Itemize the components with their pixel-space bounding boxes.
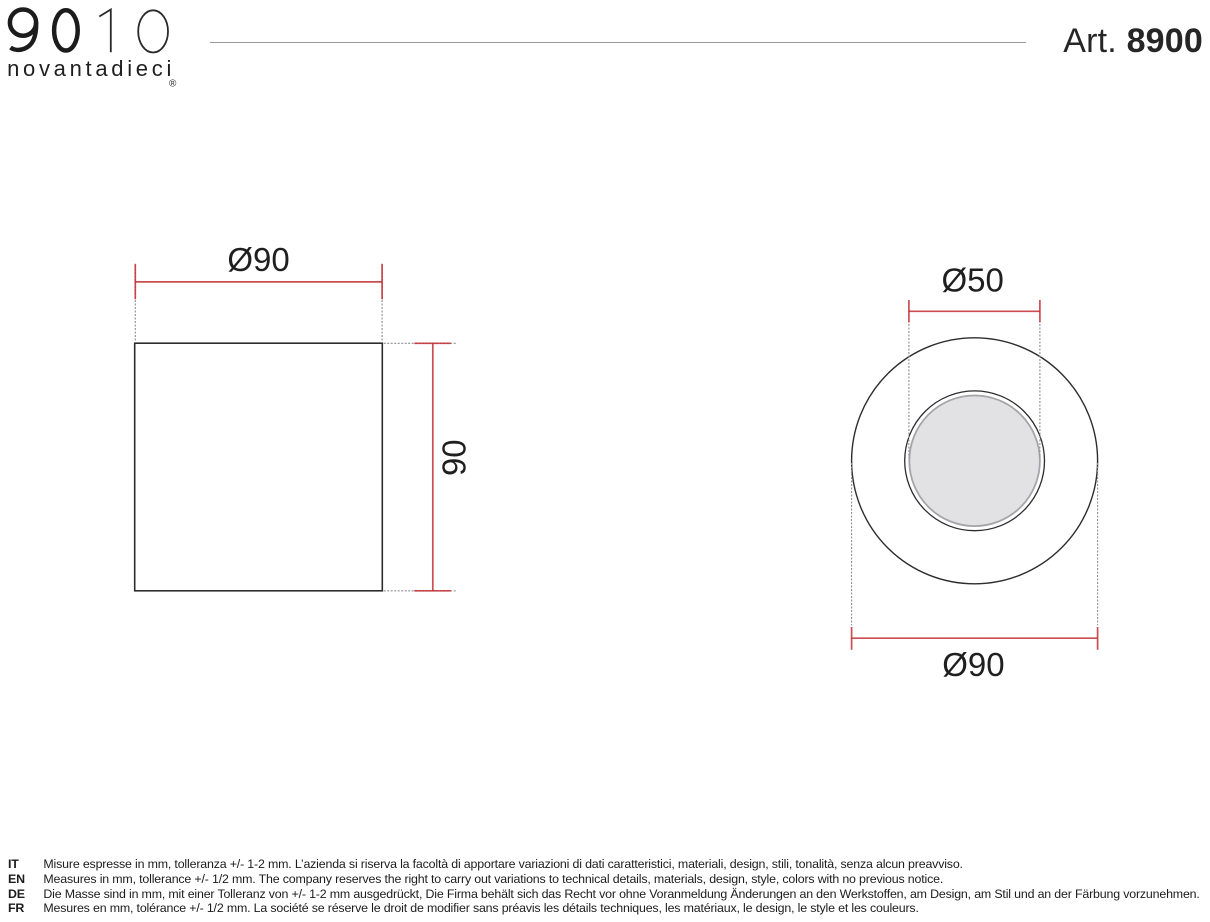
svg-text:Ø90: Ø90: [942, 646, 1004, 683]
svg-text:Ø50: Ø50: [942, 262, 1004, 299]
svg-text:®: ®: [169, 78, 177, 89]
svg-text:novantadieci: novantadieci: [7, 56, 175, 81]
svg-text:Ø90: Ø90: [227, 241, 289, 278]
svg-text:90: 90: [436, 439, 473, 476]
